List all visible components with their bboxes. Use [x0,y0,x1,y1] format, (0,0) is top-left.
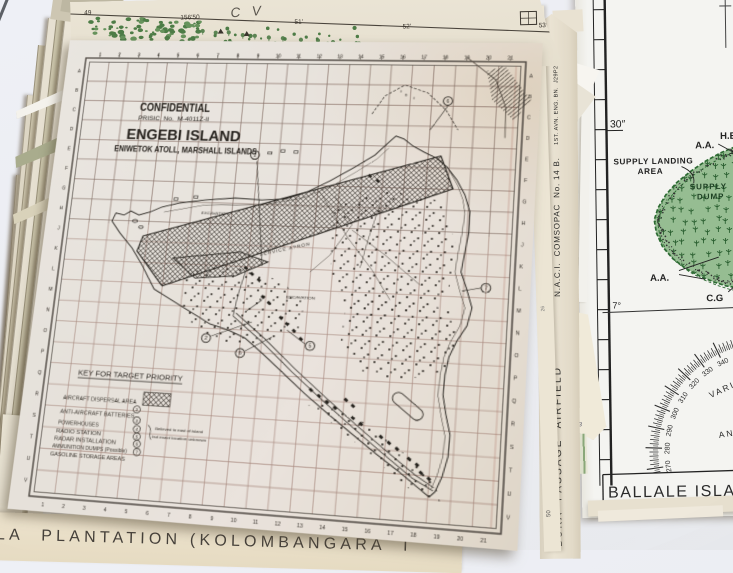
svg-text:Believed to east of island: Believed to east of island [155,427,203,435]
svg-text:F: F [524,178,528,184]
svg-text:2: 2 [62,503,66,509]
svg-text:12: 12 [274,521,281,528]
svg-text:6: 6 [146,510,150,516]
svg-text:G: G [62,185,67,190]
svg-text:6: 6 [196,53,200,58]
svg-text:C: C [72,107,77,112]
svg-text:51′: 51′ [294,19,303,26]
svg-text:H.E: H.E [720,131,733,142]
svg-text:C.G: C.G [706,293,723,304]
svg-text:5: 5 [177,53,181,58]
svg-text:N: N [516,330,520,336]
svg-text:ENIWETOK ATOLL, MARSHALL ISLAN: ENIWETOK ATOLL, MARSHALL ISLANDS [114,144,258,157]
svg-text:340: 340 [716,357,730,368]
svg-text:L: L [52,266,56,271]
svg-text:5: 5 [308,343,312,349]
svg-text:2: 2 [118,52,122,57]
svg-text:300: 300 [670,407,681,421]
svg-text:V: V [24,477,28,483]
svg-text:o: o [400,89,403,93]
svg-text:8: 8 [236,53,240,58]
svg-text:3: 3 [137,52,141,57]
svg-text:A.A.: A.A. [650,273,669,284]
svg-text:A: A [529,74,533,79]
svg-text:270: 270 [665,460,674,473]
svg-text:7: 7 [135,449,138,455]
svg-text:T: T [509,467,513,473]
svg-text:17: 17 [421,55,428,60]
svg-text:9: 9 [256,53,260,58]
svg-text:6: 6 [446,98,450,103]
svg-text:D: D [70,127,74,132]
svg-text:R: R [35,391,40,397]
svg-text:15: 15 [379,54,386,59]
svg-text:V: V [506,514,510,520]
svg-text:C V: C V [230,3,266,21]
svg-text:7°: 7° [612,300,621,310]
svg-text:F: F [65,166,69,171]
svg-text:20: 20 [457,535,464,542]
svg-text:G: G [522,199,527,205]
svg-text:12: 12 [316,54,323,59]
svg-text:O: O [514,352,519,358]
svg-text:18: 18 [410,532,417,539]
svg-text:3: 3 [135,418,138,424]
svg-text:6: 6 [238,350,242,356]
svg-text:16: 16 [364,528,371,535]
svg-text:9: 9 [210,515,214,521]
svg-text:A.A.: A.A. [695,140,714,151]
svg-text:1: 1 [99,52,103,57]
svg-text:7: 7 [167,512,171,518]
svg-text:SUPPLY: SUPPLY [690,182,727,192]
svg-text:7: 7 [484,285,488,291]
svg-text:11: 11 [252,519,259,525]
svg-text:11: 11 [296,54,302,59]
svg-text:POWERHOUSES: POWERHOUSES [58,419,99,427]
svg-text:CONFIDENTIAL: CONFIDENTIAL [139,102,211,115]
svg-text:156′50: 156′50 [180,14,200,21]
svg-text:E: E [67,146,71,151]
svg-text:20: 20 [486,55,493,60]
svg-text:O: O [43,327,48,333]
svg-text:290: 290 [665,424,674,437]
svg-text:A: A [77,69,81,74]
svg-text:18: 18 [442,55,449,60]
svg-text:15: 15 [341,526,348,533]
svg-text:D: D [526,136,530,142]
svg-text:13: 13 [337,54,344,59]
svg-text:49: 49 [84,10,92,17]
svg-text:21: 21 [507,55,514,60]
svg-text:280: 280 [664,442,671,454]
svg-text:EXCAVATION: EXCAVATION [201,211,230,216]
svg-text:T: T [29,433,33,439]
svg-text:330: 330 [701,366,715,379]
svg-text:17: 17 [387,530,394,537]
svg-text:10: 10 [230,517,237,523]
svg-text:H: H [59,205,63,210]
svg-text:K: K [519,264,523,270]
svg-text:30″: 30″ [610,118,626,130]
svg-text:2: 2 [135,407,138,413]
svg-text:7: 7 [216,53,220,58]
svg-text:Q: Q [512,398,517,404]
svg-text:PRISIC No. M-4011Z-II: PRISIC No. M-4011Z-II [138,116,210,124]
svg-text:14: 14 [319,524,326,531]
svg-text:M: M [48,286,53,292]
svg-text:5: 5 [135,434,139,440]
svg-text:but exact location unknown: but exact location unknown [152,435,207,443]
svg-text:C: C [527,115,532,121]
svg-text:Q: Q [37,369,42,375]
svg-text:14: 14 [358,54,365,59]
svg-text:16: 16 [400,54,407,59]
svg-text:L: L [518,286,522,292]
svg-text:H: H [521,221,525,227]
svg-text:5: 5 [124,508,128,514]
svg-text:2: 2 [253,152,257,157]
svg-text:AIRCRAFT DISPERSAL AREA: AIRCRAFT DISPERSAL AREA [63,395,137,405]
svg-text:B: B [405,93,408,97]
svg-text:VARI: VARI [707,379,733,399]
svg-text:3: 3 [82,505,86,511]
svg-text:1: 1 [41,502,45,508]
svg-text:4: 4 [135,426,139,432]
svg-text:U: U [26,455,30,461]
svg-text:E: E [525,157,529,163]
svg-text:8: 8 [188,514,192,520]
svg-text:21: 21 [480,537,487,544]
svg-text:4: 4 [157,52,161,57]
svg-text:310: 310 [678,391,690,405]
svg-text:R: R [511,421,516,427]
svg-text:ENGEBI ISLAND: ENGEBI ISLAND [126,127,242,146]
svg-text:J: J [57,225,60,230]
svg-text:S: S [510,444,514,450]
svg-text:B: B [75,88,79,93]
svg-text:U: U [507,490,511,496]
svg-text:AREA: AREA [638,167,664,176]
svg-text:N: N [46,307,50,313]
svg-text:13: 13 [297,522,304,529]
svg-text:P: P [41,348,45,354]
svg-text:2: 2 [204,335,208,341]
svg-text:4: 4 [103,507,107,513]
svg-text:o: o [413,96,416,100]
svg-text:M: M [516,308,521,314]
svg-text:S: S [32,412,36,418]
svg-text:DUMP: DUMP [697,192,725,201]
svg-text:52′: 52′ [403,23,412,30]
svg-text:10: 10 [275,53,282,58]
svg-text:SUPPLY LANDING: SUPPLY LANDING [613,156,693,166]
svg-text:6: 6 [135,441,138,447]
svg-text:19: 19 [433,534,440,541]
svg-text:K: K [54,245,58,250]
svg-text:ANN: ANN [718,426,733,440]
svg-text:P: P [513,375,517,381]
svg-text:J: J [521,242,524,248]
